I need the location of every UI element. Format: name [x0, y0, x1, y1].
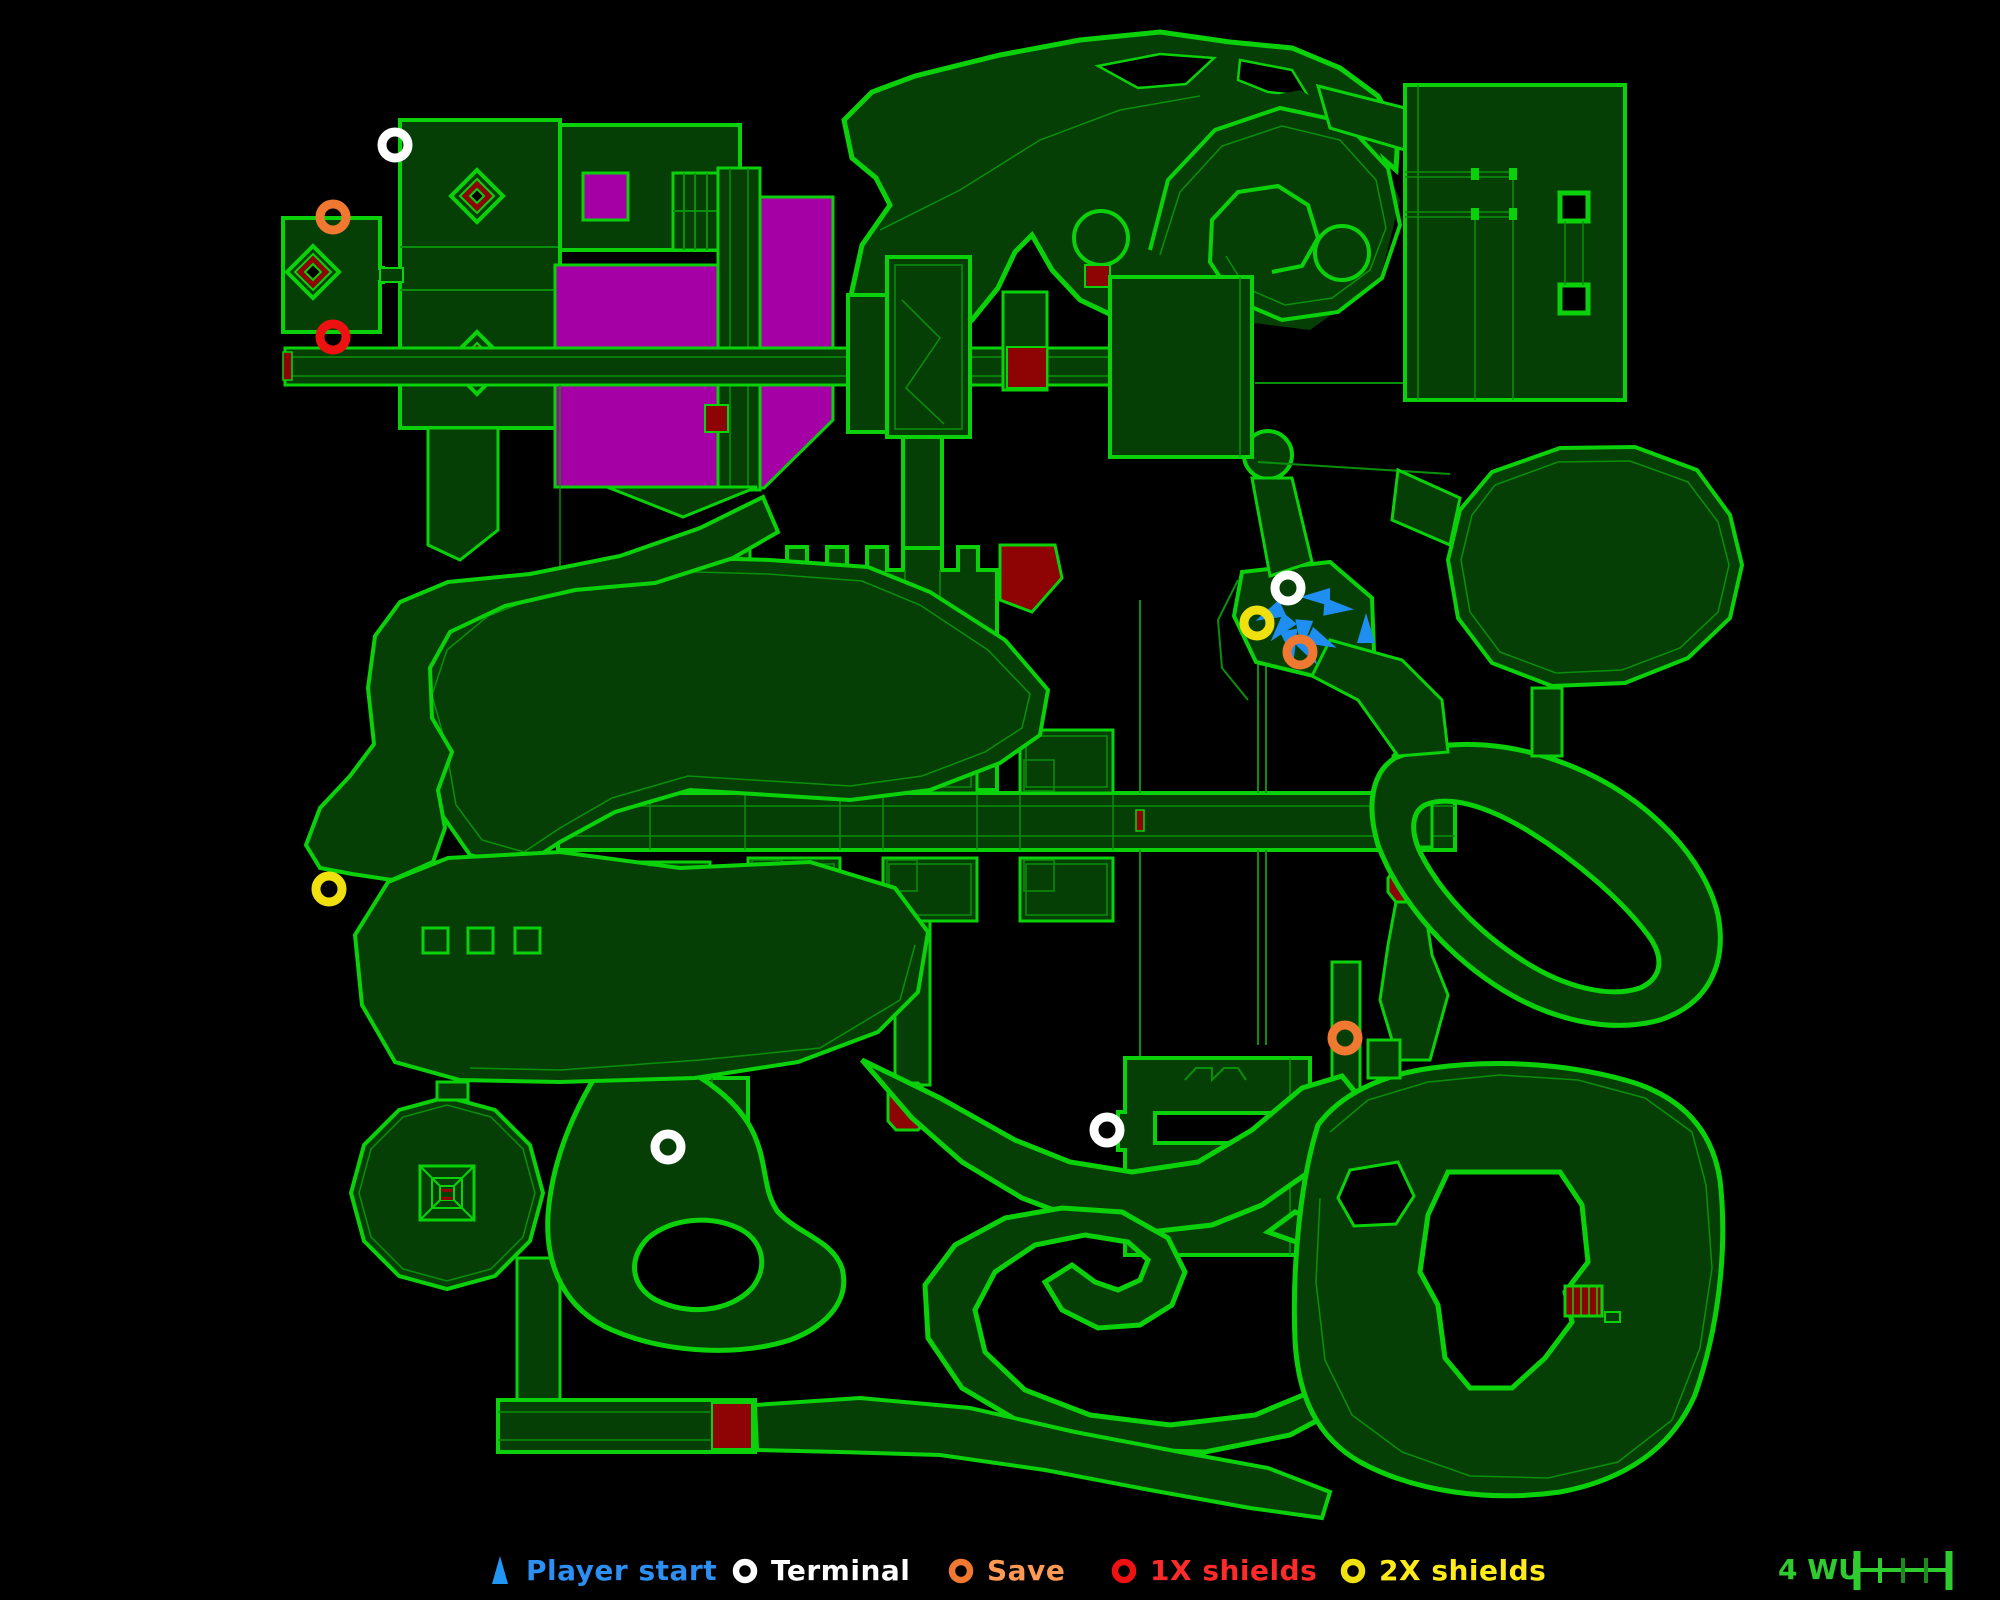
scale-label: 4 WU: [1778, 1553, 1861, 1586]
legend-item-shields-1x: 1X shields: [1111, 1550, 1317, 1590]
terminal-icon: [732, 1553, 758, 1587]
purple-room-small: [583, 173, 628, 220]
terminal-marker: [1094, 1117, 1120, 1143]
notch-room: [1020, 858, 1113, 921]
cave-link: [1392, 470, 1460, 545]
loop-cave-link: [1532, 688, 1562, 756]
shields-2x-icon: [1340, 1553, 1366, 1587]
save-icon: [948, 1553, 974, 1587]
red-room: [712, 1403, 752, 1449]
legend-item-player-start: Player start: [487, 1550, 717, 1590]
player-start-icon: [487, 1553, 513, 1587]
start-corridor-right: [1312, 640, 1448, 756]
round-room: [1074, 211, 1128, 265]
round-hall-door: [437, 1082, 468, 1100]
red-tick: [1136, 810, 1144, 831]
node: [1509, 168, 1517, 180]
map-canvas[interactable]: [0, 0, 2000, 1600]
red-room: [1007, 347, 1047, 388]
cave-east: [1448, 447, 1742, 686]
shields-2x-marker: [316, 876, 342, 902]
big-room-ne: [1405, 85, 1625, 400]
legend-item-save: Save: [948, 1550, 1065, 1590]
doorway: [380, 268, 403, 282]
band-main: [558, 793, 1455, 850]
cave-pit: [1338, 1162, 1414, 1226]
pillar: [1560, 193, 1588, 221]
hall-blob-link: [428, 428, 498, 560]
purple-left-top: [555, 265, 718, 348]
node: [1471, 168, 1479, 180]
legend-item-shields-2x: 2X shields: [1340, 1550, 1546, 1590]
purple-left-bottom: [555, 385, 718, 487]
corridor-vertical: [718, 168, 760, 490]
mid-room: [1110, 277, 1252, 457]
legend-label: Player start: [526, 1554, 717, 1587]
shields-1x-icon: [1111, 1553, 1137, 1587]
round-room: [1315, 226, 1369, 280]
blob-south: [355, 852, 928, 1082]
snake-loop-west: [548, 1040, 844, 1350]
start-corridor-up: [1252, 478, 1312, 576]
shields-1x-marker: [320, 324, 346, 350]
node: [1471, 208, 1479, 220]
node: [1509, 208, 1517, 220]
round-hall: [351, 1097, 543, 1289]
purple-right-bottom: [760, 385, 833, 488]
red-tick: [441, 1189, 453, 1192]
terminal-marker: [382, 132, 408, 158]
legend-label: Terminal: [771, 1554, 910, 1587]
map-viewer: Player startTerminalSave1X shields2X shi…: [0, 0, 2000, 1600]
round-hall-exit: [517, 1258, 560, 1408]
red-room: [1085, 265, 1110, 287]
red-tick: [441, 1197, 453, 1200]
red-tick: [283, 352, 292, 380]
legend-label: 1X shields: [1150, 1554, 1317, 1587]
purple-right-top: [760, 197, 833, 348]
red-pentagon: [1000, 545, 1062, 612]
legend-item-terminal: Terminal: [732, 1550, 910, 1590]
legend-label: 2X shields: [1379, 1554, 1546, 1587]
legend-label: Save: [987, 1554, 1065, 1587]
red-room-small: [705, 405, 728, 432]
pillar: [1560, 285, 1588, 313]
cave-link-up: [1368, 1040, 1400, 1078]
